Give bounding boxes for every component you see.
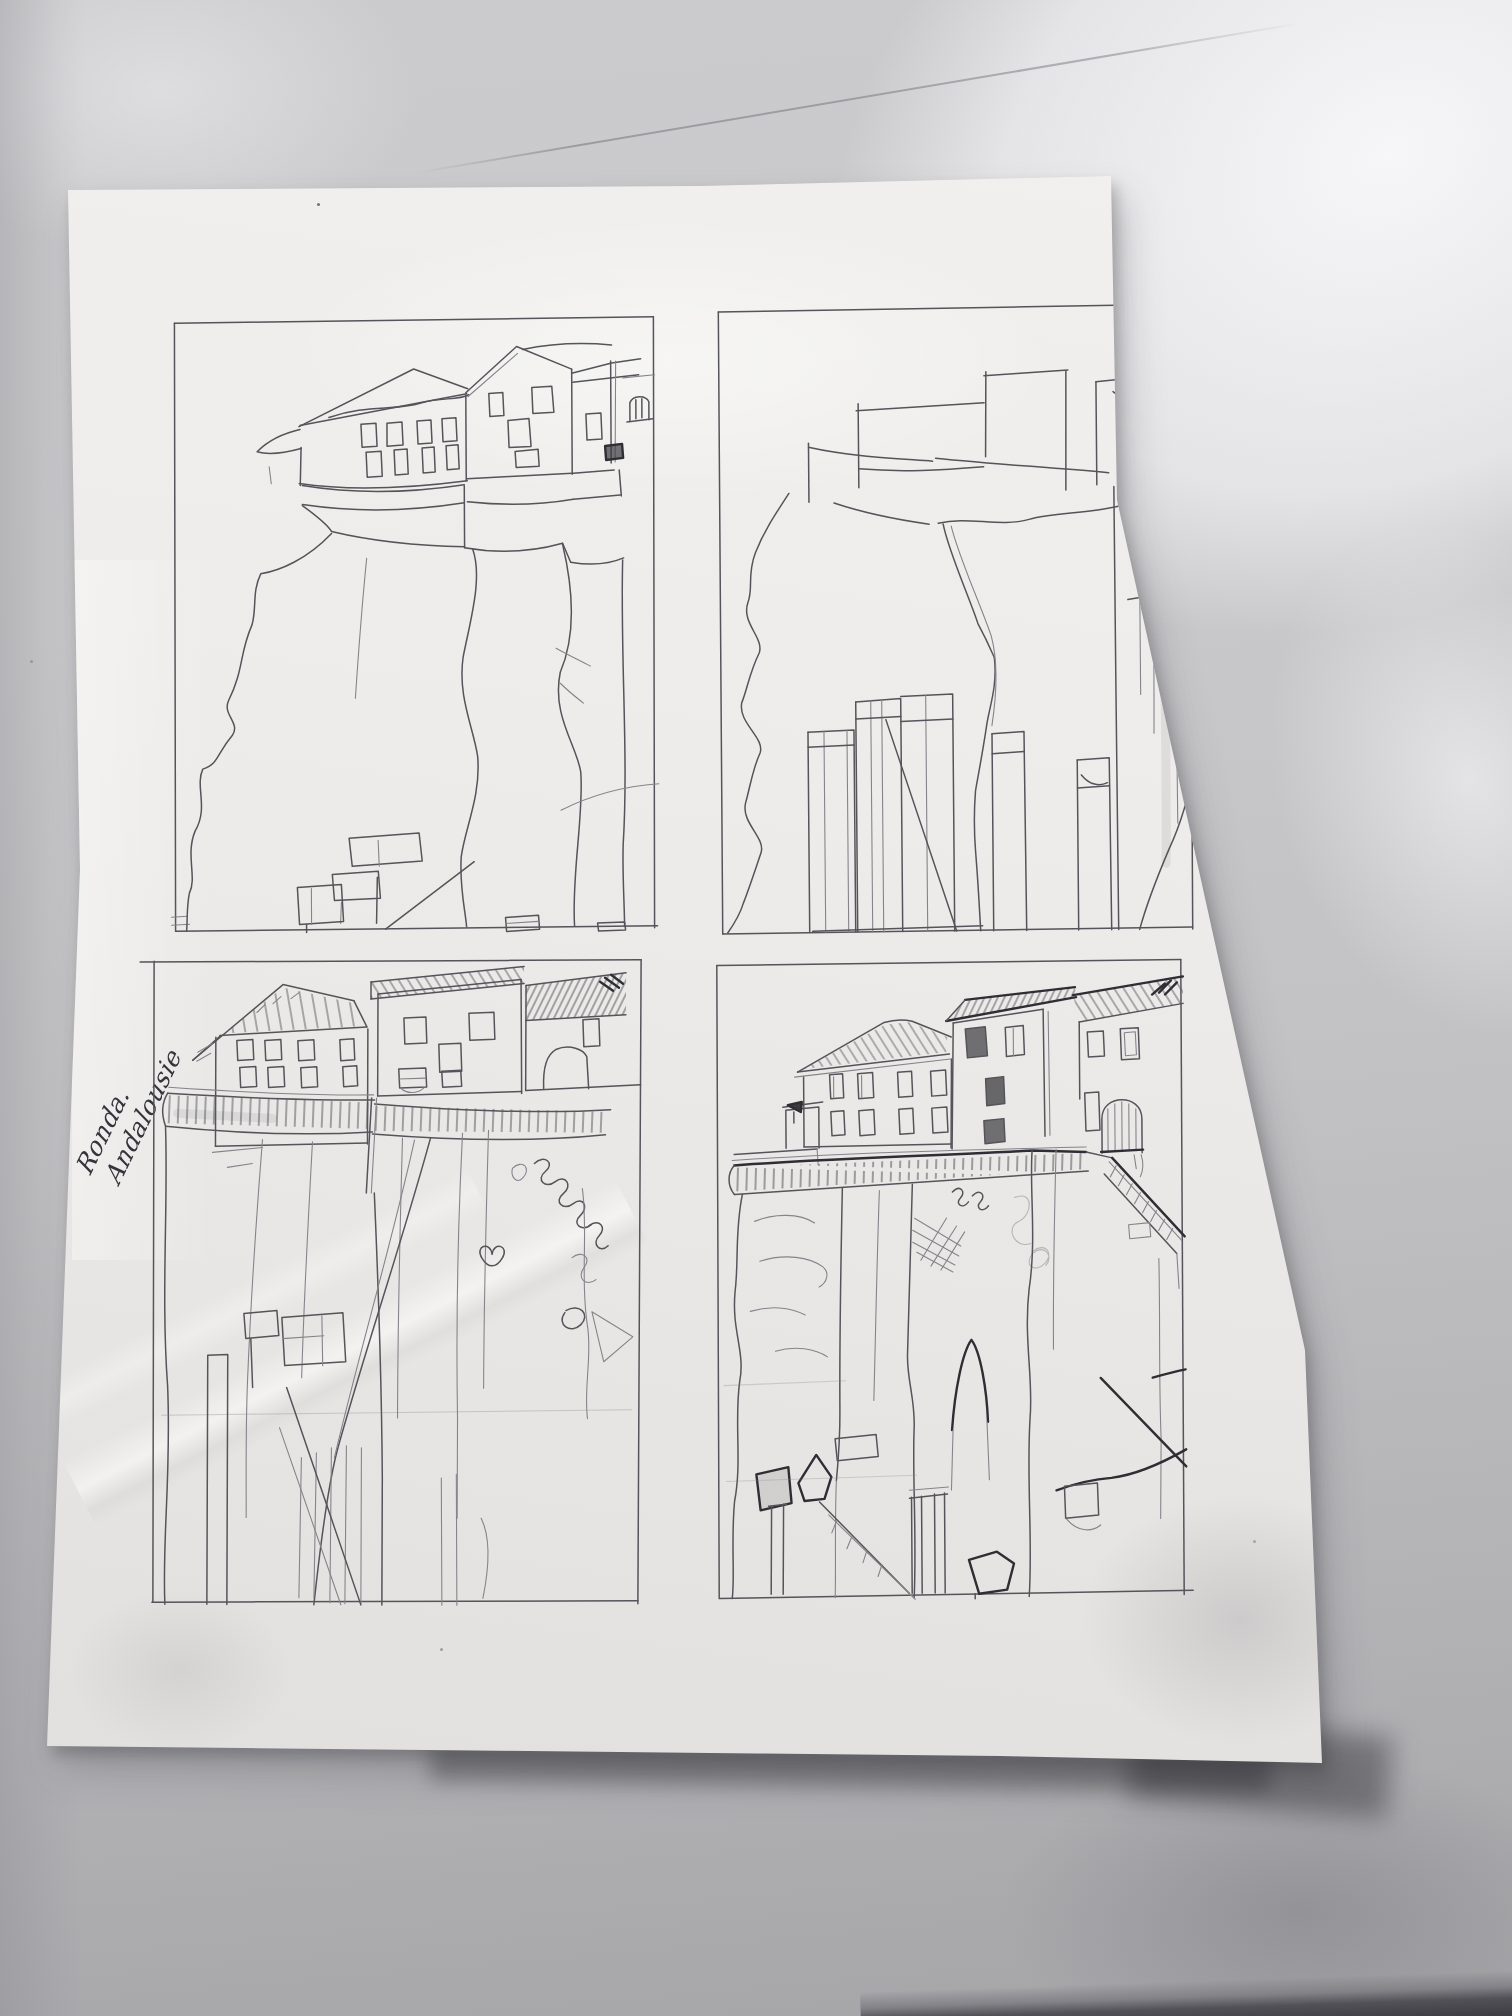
panel-frame xyxy=(168,317,657,932)
sketch-paper: Ronda. Andalousie xyxy=(0,0,1512,2016)
photo-of-sketch-page: Ronda. Andalousie xyxy=(0,0,1512,2016)
pencil-speck xyxy=(440,1648,443,1651)
gabled-house xyxy=(466,346,573,479)
center-house xyxy=(946,987,1077,1149)
sketch-panel-top-right xyxy=(715,303,1196,935)
pencil-speck xyxy=(1253,1540,1256,1543)
middle-house xyxy=(371,966,524,1097)
vegetation-scribbles xyxy=(479,1159,633,1419)
retaining-wall xyxy=(163,1087,611,1194)
right-house xyxy=(1073,976,1184,1177)
cliff-gorge xyxy=(185,532,660,931)
base-rocks xyxy=(724,1379,1102,1601)
panel-frame xyxy=(717,304,1199,934)
sketch-panel-bottom-left xyxy=(151,956,644,1606)
panel-frame xyxy=(138,958,641,1604)
sketch-panel-top-left xyxy=(170,315,659,934)
left-house xyxy=(782,1020,952,1150)
cliff-outlines xyxy=(724,486,1197,933)
right-structures xyxy=(523,343,656,463)
right-house xyxy=(526,972,641,1090)
sketch-panel-bottom-right xyxy=(713,957,1188,1600)
building-masses xyxy=(856,369,1186,492)
staircase xyxy=(1104,1157,1185,1289)
paper-wrapper: Ronda. Andalousie xyxy=(0,0,1512,2016)
left-house xyxy=(257,369,470,489)
clifftop-wall xyxy=(302,470,623,566)
cliff-face xyxy=(729,1148,1187,1598)
base-towers xyxy=(808,693,1112,933)
cliff-face xyxy=(161,1127,633,1606)
pencil-speck xyxy=(317,203,320,206)
